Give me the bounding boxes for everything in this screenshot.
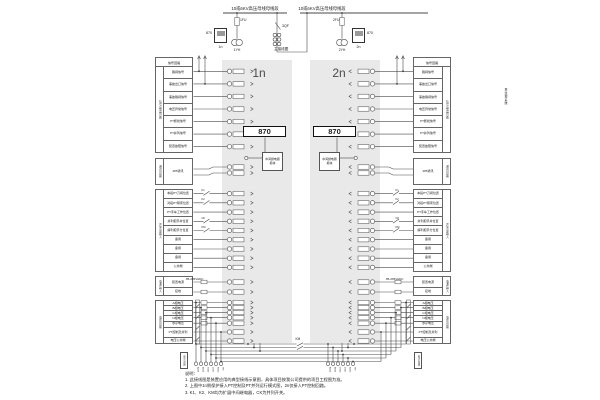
signal-row: 事故出口信号 (164, 79, 192, 91)
comm-row: 485通讯 (164, 159, 192, 184)
signal-row: PT并列信号 (164, 128, 192, 140)
contact-label-k1: K1 (396, 189, 399, 192)
di-row: PT手车工作位置 (414, 208, 442, 217)
voltage-row: PT控制及并列 (164, 328, 192, 339)
voltage-bus-tag-right: 电压小母线 (414, 352, 422, 369)
incoming-section (223, 12, 428, 52)
contact-label-km: KM (202, 226, 206, 229)
signal-row: 电压异常信号 (414, 104, 442, 116)
contact-label-ck: CK (396, 217, 400, 220)
di-table-left: 开关量输入 本段PT刀闸位置对段PT隔离位置PT手车工作位置并列把手并位置解列把… (155, 189, 193, 272)
pt-left-label: 1YH (229, 48, 245, 52)
di-table-side-label: 开关量输入 (442, 190, 450, 271)
voltage-bus-tag-left: 电压小母线 (180, 352, 188, 369)
contact-label-km: KM (396, 226, 400, 229)
comm-table-side-label: 通讯回路 (442, 159, 450, 184)
voltage-table-side-label: 电压回路 (442, 301, 450, 343)
contact-label-ck: CK (202, 217, 206, 220)
di-row: 本段PT刀闸位置 (414, 190, 442, 199)
di-row: PT手车工作位置 (164, 208, 192, 217)
module-870-right: 870 (313, 126, 356, 137)
signal-row: 事故跳闸信号 (414, 92, 442, 104)
di-row: 并列把手并位置 (414, 217, 442, 226)
relay-module-right: 中间继电器模块 (319, 152, 340, 171)
device-870-right-id: 2n (351, 45, 366, 49)
di-row: 解列把手分位置 (164, 226, 192, 235)
main-wiring-label: 主接线图 (274, 47, 288, 52)
voltage-row: PT控制及并列 (414, 328, 442, 339)
cabinet-panels (222, 60, 380, 343)
signal-row: PT并列信号 (414, 128, 442, 140)
km-tie-label: KM (296, 337, 301, 341)
comm-row: 485通讯 (414, 159, 442, 184)
signal-table-side-label: 信号输出回路 (442, 67, 450, 152)
signal-row: 跳闸信号 (414, 67, 442, 79)
power-table-side-label: 电源输入 (156, 277, 164, 295)
signal-table-header: 信号回路 (414, 58, 450, 67)
breaker-label: 3QF (282, 24, 289, 28)
power-row: 接地 (414, 288, 442, 295)
signal-row: PT断线信号 (414, 116, 442, 128)
signal-row: 事故跳闸信号 (164, 92, 192, 104)
power-table-right: 电源输入 装置电源接地 (413, 276, 451, 296)
signal-row: 装置故障信号 (414, 141, 442, 152)
signal-row: 跳闸信号 (164, 67, 192, 79)
signal-table-right: 信号回路 信号输出回路 跳闸信号事故出口信号事故跳闸信号电压异常信号PT断线信号… (413, 57, 451, 153)
power-row: 接地 (164, 288, 192, 295)
device-870-left (214, 28, 227, 43)
power-row: 装置电源 (414, 277, 442, 288)
signal-row: 事故出口信号 (414, 79, 442, 91)
voltage-wires-right (349, 300, 413, 362)
power-table-side-label: 电源输入 (442, 277, 450, 295)
panel-right-id: 2n (324, 66, 354, 80)
voltage-table-right: 电压回路 A相电压B相电压C相电压N相电压零序电压PT控制及并列电压公共端 (413, 300, 451, 344)
di-row: 并列把手并位置 (164, 217, 192, 226)
signal-table-side-label: 信号输出回路 (156, 67, 164, 152)
device-870-left-id: 1n (213, 45, 228, 49)
di-row: 本段PT刀闸位置 (164, 190, 192, 199)
contact-label-k2: K2 (396, 198, 399, 201)
di-row: 备用 (414, 245, 442, 254)
di-table-right: 开关量输入 本段PT刀闸位置对段PT隔离位置PT手车工作位置并列把手并位置解列把… (413, 189, 451, 272)
contact-label-k2: K2 (202, 198, 205, 201)
schematic-page: 10或6KV高压母线母线段 10或6KV高压母线母线段 870 1n 1FU 1… (0, 0, 600, 400)
di-row: 备用 (414, 236, 442, 245)
comm-table-left: 通讯回路 485通讯 (155, 158, 193, 185)
di-wires-right (349, 191, 413, 269)
signal-table-left: 信号回路 信号输出回路 跳闸信号事故出口信号事故跳闸信号电压异常信号PT断线信号… (155, 57, 193, 153)
comm-table-right: 通讯回路 485通讯 (413, 158, 451, 185)
di-row: 公共端 (414, 263, 442, 271)
notes-block: 说明： 1. 此接线图是装置应用的典型接线示意图，具体项目按我公司提供的项目工程… (185, 371, 445, 396)
monitoring-annotation: 至监控系统 (504, 88, 508, 148)
di-row: 对段PT隔离位置 (164, 199, 192, 208)
di-row: 公共端 (164, 263, 192, 271)
fuse-left-label: 1FU (240, 18, 246, 22)
di-row: 备用 (414, 254, 442, 263)
device-870-right-label: 870 (367, 31, 373, 35)
voltage-row: 电压公共端 (164, 338, 192, 343)
note-line: 3. K1、K2、KM均为扩展中间继电器，CK为并列开关。 (185, 390, 445, 396)
fuse-right-label: 2FU (333, 18, 339, 22)
supply-range-left: 85-265VADC (186, 277, 203, 281)
voltage-mini-bus (195, 343, 407, 366)
device-screen-icon (217, 31, 225, 36)
voltage-row: 电压公共端 (414, 338, 442, 343)
contact-label-k1: K1 (202, 189, 205, 192)
signal-table-header: 信号回路 (156, 58, 192, 67)
supply-range-right: 85-265VADC (386, 277, 403, 281)
device-screen-icon (355, 31, 363, 36)
module-870-left: 870 (243, 126, 286, 137)
comm-table-side-label: 通讯回路 (156, 159, 164, 184)
di-row: 对段PT隔离位置 (414, 199, 442, 208)
device-870-right (352, 28, 365, 43)
bus-title-right: 10或6KV高压母线母线段 (262, 6, 382, 12)
signal-row: 装置故障信号 (164, 141, 192, 152)
relay-module-left: 中间继电器模块 (262, 152, 283, 171)
voltage-table-left: 电压回路 A相电压B相电压C相电压N相电压零序电压PT控制及并列电压公共端 (155, 300, 193, 344)
signal-row: PT断线信号 (164, 116, 192, 128)
di-row: 备用 (164, 245, 192, 254)
pt-right-label: 2YH (334, 48, 350, 52)
panel-left-id: 1n (244, 66, 274, 80)
device-870-left-label: 870 (200, 31, 212, 35)
di-row: 备用 (164, 236, 192, 245)
di-row: 解列把手分位置 (414, 226, 442, 235)
di-row: 备用 (164, 254, 192, 263)
signal-row: 电压异常信号 (164, 104, 192, 116)
voltage-table-side-label: 电压回路 (156, 301, 164, 343)
di-table-side-label: 开关量输入 (156, 190, 164, 271)
